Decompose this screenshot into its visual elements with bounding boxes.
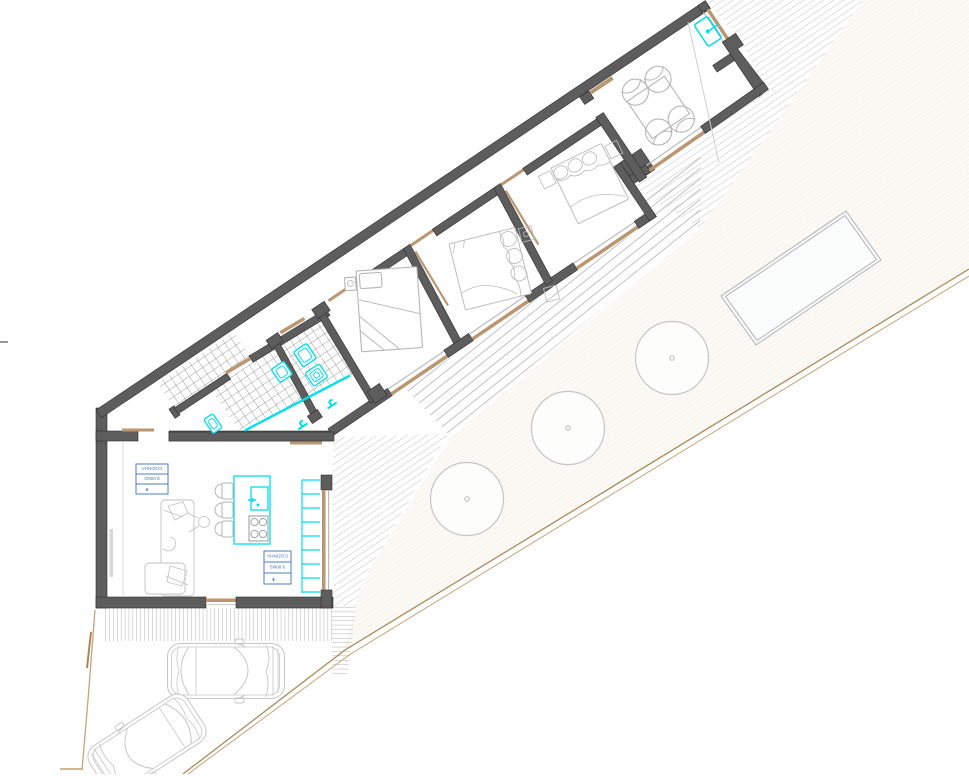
svg-text:COZINHA: COZINHA [266,554,288,559]
svg-text:▼: ▼ [145,488,150,494]
svg-text:8.00M2: 8.00M2 [144,476,160,481]
svg-text:9.80M2: 9.80M2 [269,565,285,570]
svg-text:COZINHA: COZINHA [141,466,163,471]
svg-text:▼: ▼ [271,578,276,584]
